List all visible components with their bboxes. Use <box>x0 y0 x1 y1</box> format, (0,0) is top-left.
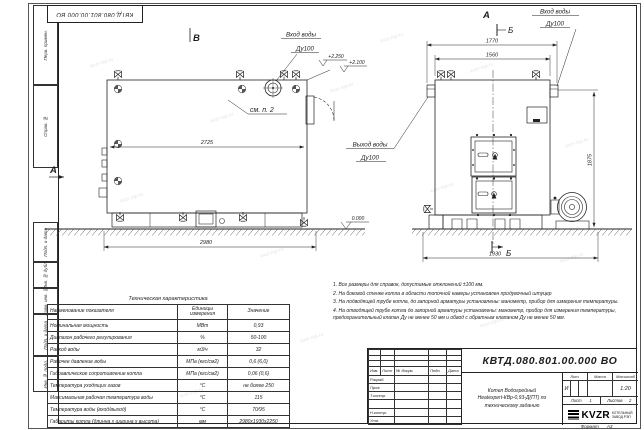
sheet-label: Лист <box>571 398 582 403</box>
param-unit: МПа (кгс/см2) <box>178 368 228 380</box>
param-value: 32 <box>228 344 290 356</box>
scale-value: 1:20 <box>613 381 638 396</box>
param-unit: мм <box>178 416 228 428</box>
tech-table: Наименование показателя Единицы измерени… <box>47 304 290 428</box>
blower-fan-icon <box>551 193 589 230</box>
svg-text:Ду100: Ду100 <box>545 21 564 28</box>
sheets-label: Листов <box>607 398 622 403</box>
sheet-row: Лист1 Листов2 <box>563 397 638 405</box>
hdr-izm: Изм. <box>369 366 381 375</box>
param-value: 0,06 (0,6) <box>228 368 290 380</box>
param-value: не более 250 <box>228 380 290 392</box>
param-name: Максимальная рабочая температура воды <box>48 392 178 404</box>
svg-text:+2.250: +2.250 <box>328 54 344 60</box>
tech-row: Температура уходящих газов°Сне более 250 <box>48 380 290 392</box>
title-block-staff-grid: Изм. Лист № докум. Подп. Дата Разраб. Пр… <box>368 349 462 425</box>
kvzr-logo-text: KVZR <box>581 410 609 421</box>
valve-icons-front <box>424 71 540 213</box>
svg-text:2725: 2725 <box>200 140 214 146</box>
product-name-line2: Heatexpert-КВр-0,93-Д(ПТ) по <box>478 395 547 403</box>
tech-row: Габариты котла (длинна х ширина х высота… <box>48 416 290 428</box>
note-3: 3. На подводящей трубе котла, до запорно… <box>333 299 636 307</box>
param-name: Расход воды <box>48 344 178 356</box>
hdr-podp: Подп. <box>429 366 447 375</box>
param-value: 0,6 (6,0) <box>228 356 290 368</box>
role-tkontr: Т.контр. <box>369 392 395 400</box>
tech-row: Номинальная мощностьМВт0,93 <box>48 320 290 332</box>
param-name: Температура уходящих газов <box>48 380 178 392</box>
lit-mass-scale: Лит. Масса Масштаб И 1:20 Лист1 Листов2 <box>563 373 638 425</box>
sheets-value: 2 <box>629 398 631 403</box>
svg-text:В: В <box>193 33 200 44</box>
tech-header-name: Наименование показателя <box>48 305 178 320</box>
logo-caption-line2: ЗАВОД РЭП <box>612 415 631 419</box>
svg-text:+2.100: +2.100 <box>349 60 365 66</box>
tech-header-unit: Единицы измерения <box>178 305 228 320</box>
role-utv: Утв. <box>369 416 395 424</box>
tech-row: Рабочее давление водыМПа (кгс/см2)0,6 (6… <box>48 356 290 368</box>
format-word: Формат <box>581 424 599 429</box>
param-value: 0,93 <box>228 320 290 332</box>
dimension-1875: 1875 <box>558 90 598 227</box>
drawing-sheet: kvzr-rep.ru kvzr-rep.ru kvzr-rep.ru kvzr… <box>0 0 644 430</box>
sheet-value: 1 <box>589 398 591 403</box>
param-value: 50-100 <box>228 332 290 344</box>
param-unit: МВт <box>178 320 228 332</box>
inlet-flange-icon <box>263 78 283 98</box>
hdr-list: Лист <box>381 366 395 375</box>
param-name: Номинальная мощность <box>48 320 178 332</box>
ground-line-right <box>412 229 632 236</box>
param-value: 115 <box>228 392 290 404</box>
kvzr-logo-caption: КОТЕЛЬНЫЙ ЗАВОД РЭП <box>612 411 633 419</box>
param-unit: МПа (кгс/см2) <box>178 356 228 368</box>
svg-text:Выход воды: Выход воды <box>353 142 388 149</box>
tech-characteristics: Техническая характеристика Наименование … <box>47 296 289 428</box>
svg-text:Б: Б <box>506 249 511 258</box>
dimension-1770: 1770 <box>427 39 557 84</box>
role-prov: Пров. <box>369 383 395 391</box>
ground-line-left <box>45 229 365 236</box>
svg-text:Б: Б <box>508 26 513 35</box>
tech-header-value: Значение <box>228 305 290 320</box>
kvzr-logo-icon <box>568 410 579 420</box>
svg-text:1560: 1560 <box>486 53 499 59</box>
param-unit: °С <box>178 404 228 416</box>
title-block: Изм. Лист № докум. Подп. Дата Разраб. Пр… <box>367 348 637 424</box>
svg-text:Ду100: Ду100 <box>360 155 379 162</box>
mass-label: Масса <box>588 373 613 380</box>
format-value: А3 <box>607 424 613 429</box>
lifting-eye-icons <box>114 85 300 185</box>
see-note-callout: см. п. 2 <box>228 100 287 114</box>
param-unit: °С <box>178 392 228 404</box>
title-block-right: КВТД.080.801.00.000 ВО Котел Водогрейный… <box>461 349 638 425</box>
dimension-2725: 2725 <box>110 140 304 147</box>
inlet-label-front: Вход воды Ду100 <box>532 9 579 87</box>
param-unit: % <box>178 332 228 344</box>
svg-text:Вход воды: Вход воды <box>540 9 570 16</box>
param-unit: м3/ч <box>178 344 228 356</box>
hdr-docnum: № докум. <box>395 366 429 375</box>
boiler-front-view <box>427 70 589 244</box>
param-name: Рабочее давление воды <box>48 356 178 368</box>
tech-table-title: Техническая характеристика <box>47 296 289 302</box>
svg-text:1875: 1875 <box>588 153 594 166</box>
hdr-data: Дата <box>447 366 462 375</box>
param-value: 2980х1930х2250 <box>228 416 290 428</box>
lit-label: Лит. <box>563 373 588 380</box>
company-logo: KVZR КОТЕЛЬНЫЙ ЗАВОД РЭП <box>563 405 638 425</box>
param-unit: °С <box>178 380 228 392</box>
notes-block: 1. Все размеры для справок, допустимые о… <box>333 282 636 324</box>
svg-text:Вход воды: Вход воды <box>286 32 316 39</box>
product-name-line3: техническому заданию <box>485 403 540 411</box>
lit-value: И <box>563 381 571 396</box>
note-1: 1. Все размеры для справок, допустимые о… <box>333 282 636 290</box>
param-name: Габариты котла (длинна х ширина х высота… <box>48 416 178 428</box>
doc-number: КВТД.080.801.00.000 ВО <box>462 349 638 373</box>
product-name: Котел Водогрейный Heatexpert-КВр-0,93-Д(… <box>462 373 563 425</box>
role-nkontr: Н.контр. <box>369 408 395 416</box>
tech-row: Гидравлическое сопротивление котлаМПа (к… <box>48 368 290 380</box>
product-name-line1: Котел Водогрейный <box>488 388 536 396</box>
role-razrab: Разраб. <box>369 375 395 383</box>
tech-row: Расход водым3/ч32 <box>48 344 290 356</box>
note-4: 4. На отводящей трубе котла до запорной … <box>333 308 636 323</box>
scale-label: Масштаб <box>613 373 638 380</box>
outlet-label: Выход воды Ду100 <box>346 97 428 162</box>
view-a-arrow-label: А <box>49 165 64 177</box>
view-a-label: А <box>482 10 490 21</box>
role-blank <box>369 400 395 408</box>
svg-text:см. п. 2: см. п. 2 <box>250 107 274 114</box>
param-value: 70/95 <box>228 404 290 416</box>
param-name: Гидравлическое сопротивление котла <box>48 368 178 380</box>
tech-row: Максимальная рабочая температура воды°С1… <box>48 392 290 404</box>
tech-row: Температура воды (вход/выход)°С70/95 <box>48 404 290 416</box>
svg-text:1770: 1770 <box>486 39 499 45</box>
param-name: Температура воды (вход/выход) <box>48 404 178 416</box>
param-name: Диапазон рабочего регулирования <box>48 332 178 344</box>
lit-cells: И <box>563 381 588 396</box>
boiler-side-view <box>99 80 334 227</box>
svg-text:Ду100: Ду100 <box>295 46 314 53</box>
svg-text:А: А <box>49 165 57 176</box>
svg-text:0.000: 0.000 <box>352 216 365 222</box>
note-2: 2. На боковой стенке котла в области топ… <box>333 291 636 299</box>
tech-row: Диапазон рабочего регулирования%50-100 <box>48 332 290 344</box>
svg-text:1930: 1930 <box>489 252 502 258</box>
view-b-label: В <box>190 28 200 44</box>
format-label: ФорматА3 <box>556 424 637 429</box>
svg-text:2980: 2980 <box>199 240 213 246</box>
mass-value <box>588 381 613 396</box>
